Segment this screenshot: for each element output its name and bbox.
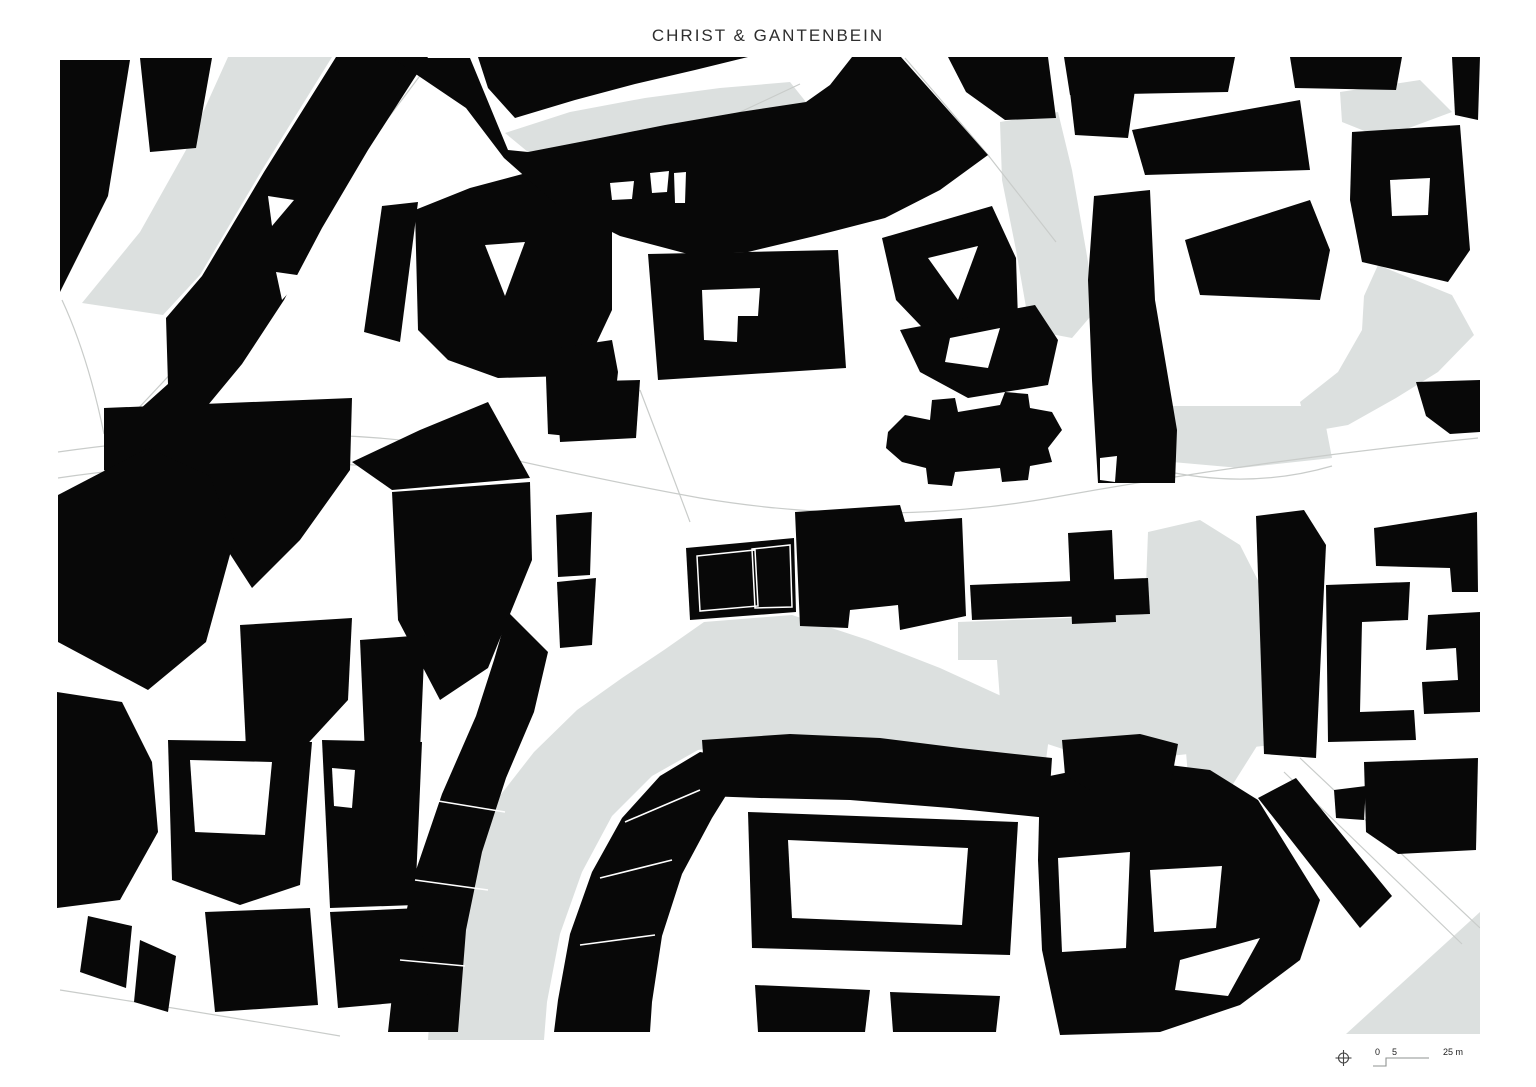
building-footprint <box>1256 510 1326 758</box>
building-footprint <box>364 202 418 342</box>
building-footprint <box>1088 190 1177 483</box>
building-footprint <box>1334 786 1366 820</box>
building-footprint <box>330 908 428 1008</box>
building-footprint <box>1064 57 1235 95</box>
courtyard <box>610 181 634 200</box>
scale-step-line <box>1372 1055 1434 1069</box>
building-footprint <box>58 448 234 690</box>
building-footprint <box>352 402 530 490</box>
site-plan-page: CHRIST & GANTENBEIN 0 5 25 m <box>0 0 1536 1087</box>
scale-bar: 0 5 25 m <box>1333 1043 1503 1079</box>
plaza-area <box>1163 406 1332 468</box>
building-footprint <box>1374 512 1478 592</box>
courtyard <box>190 760 272 835</box>
building-footprint <box>1364 758 1478 854</box>
cathedral-footprint <box>886 392 1062 486</box>
map-layers <box>57 57 1480 1040</box>
building-footprint <box>1132 100 1310 175</box>
street-hairline <box>62 300 104 434</box>
courtyard <box>1390 178 1430 216</box>
building-footprint <box>755 985 870 1032</box>
building-footprint <box>1070 90 1135 138</box>
building-footprint <box>1326 582 1416 742</box>
building-footprint <box>556 512 592 577</box>
building-footprint <box>80 916 132 988</box>
building-footprint <box>1062 734 1178 790</box>
open-space <box>1346 912 1480 1034</box>
building-footprint <box>240 618 352 752</box>
courtyard <box>1150 866 1222 932</box>
building-footprint <box>205 908 318 1012</box>
street-hairline <box>640 390 690 522</box>
courtyard <box>332 768 355 808</box>
building-footprint <box>1185 200 1330 300</box>
building-footprint <box>1422 612 1480 714</box>
scale-max-label: 25 m <box>1443 1048 1463 1057</box>
building-footprint <box>1416 380 1480 434</box>
building-footprint <box>890 992 1000 1032</box>
building-footprint <box>1452 57 1480 120</box>
courtyard <box>788 840 968 925</box>
building-footprint <box>948 57 1056 120</box>
street-hairline <box>1160 466 1332 479</box>
building-footprint <box>1068 530 1116 624</box>
building-footprint <box>557 578 596 648</box>
site-plan-map <box>0 0 1536 1087</box>
courtyard <box>650 171 669 193</box>
building-footprint <box>1290 57 1402 90</box>
north-compass-icon <box>1333 1046 1357 1070</box>
building-footprint <box>970 578 1150 620</box>
building-footprint <box>360 635 425 755</box>
building-footprint <box>57 692 158 908</box>
building-footprint <box>322 740 422 908</box>
building-footprint <box>134 940 176 1012</box>
courtyard <box>674 172 686 203</box>
building-footprint <box>795 505 966 630</box>
courtyard <box>1100 456 1117 482</box>
building-footprint <box>556 380 640 442</box>
courtyard <box>1058 852 1130 952</box>
